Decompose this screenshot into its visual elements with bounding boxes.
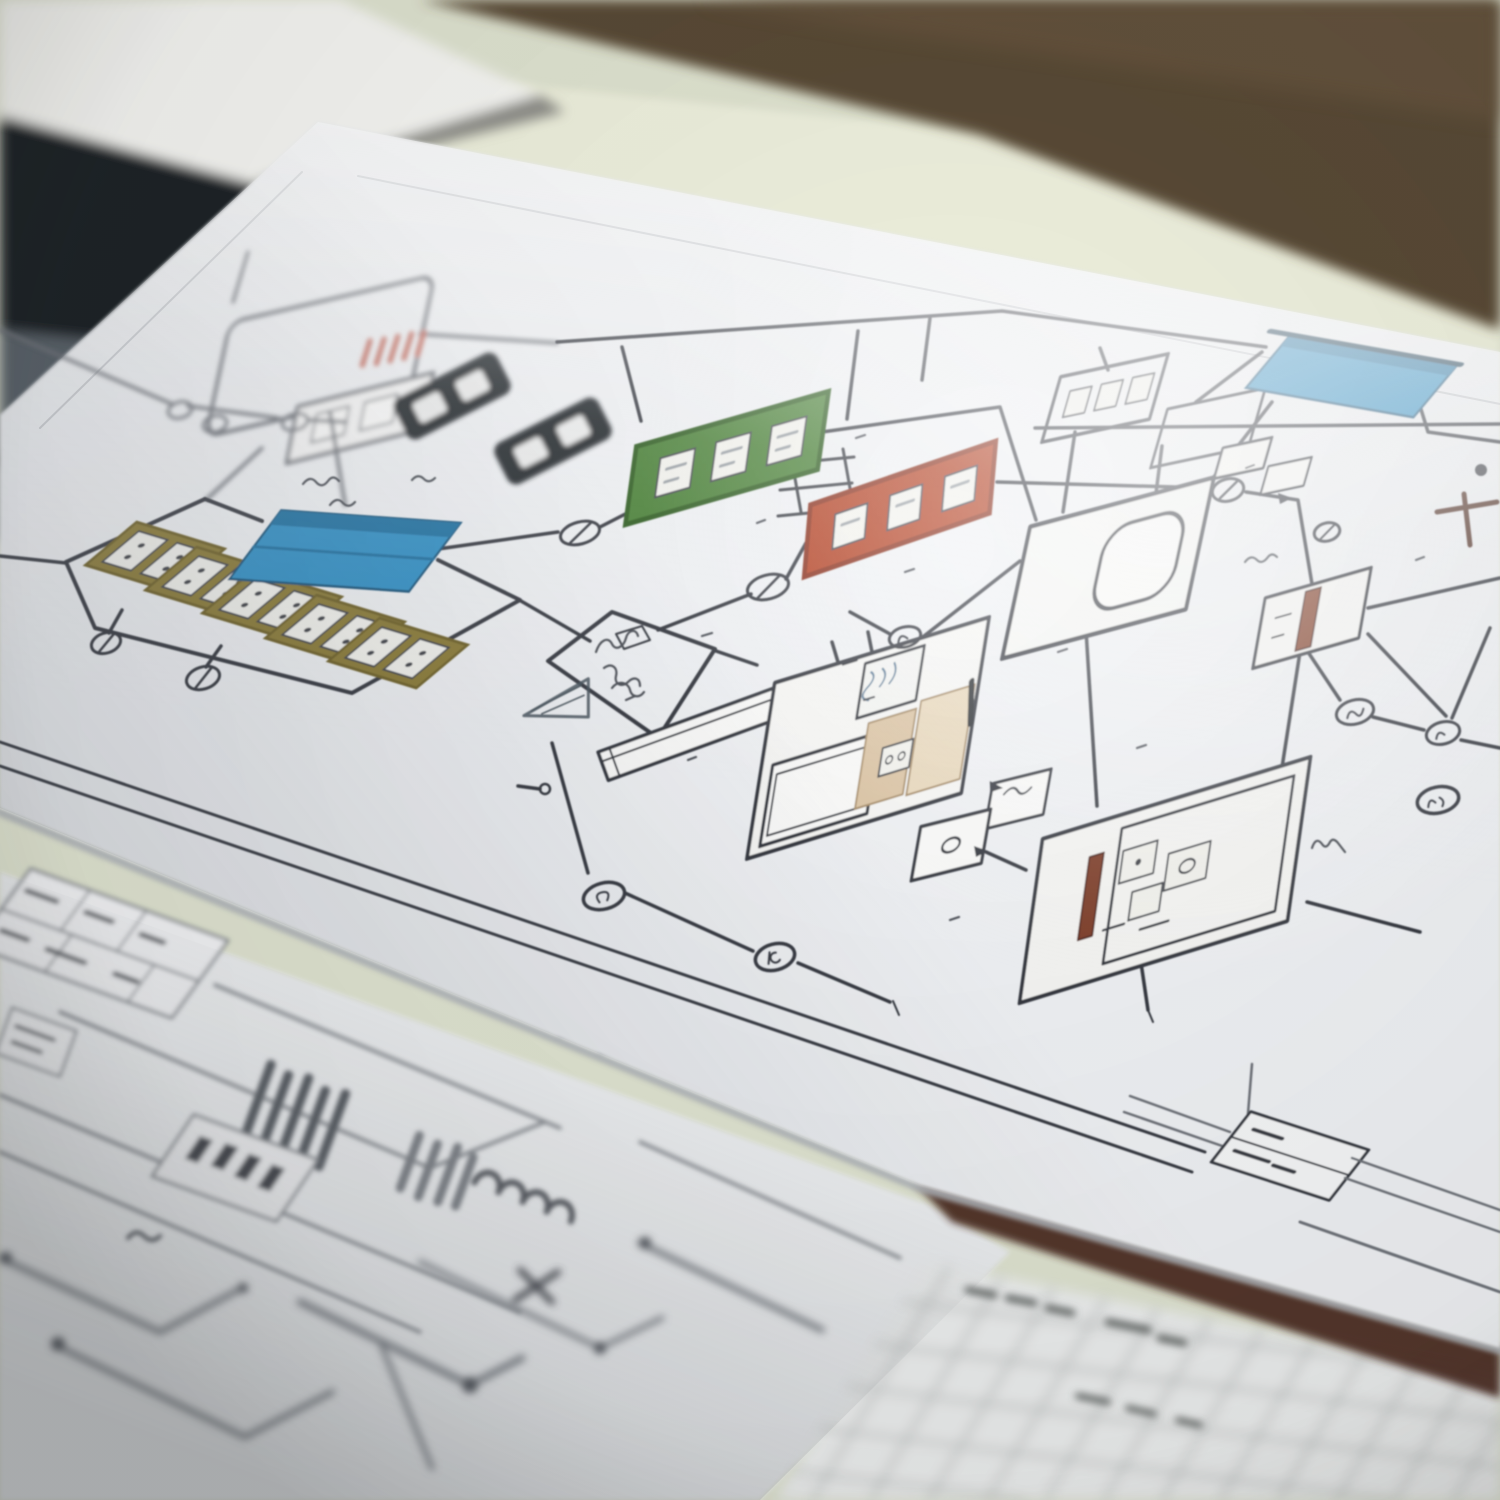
junction-dot [1475,464,1487,476]
photo-canvas [0,0,1500,1500]
photo-of-schematics [0,0,1500,1500]
